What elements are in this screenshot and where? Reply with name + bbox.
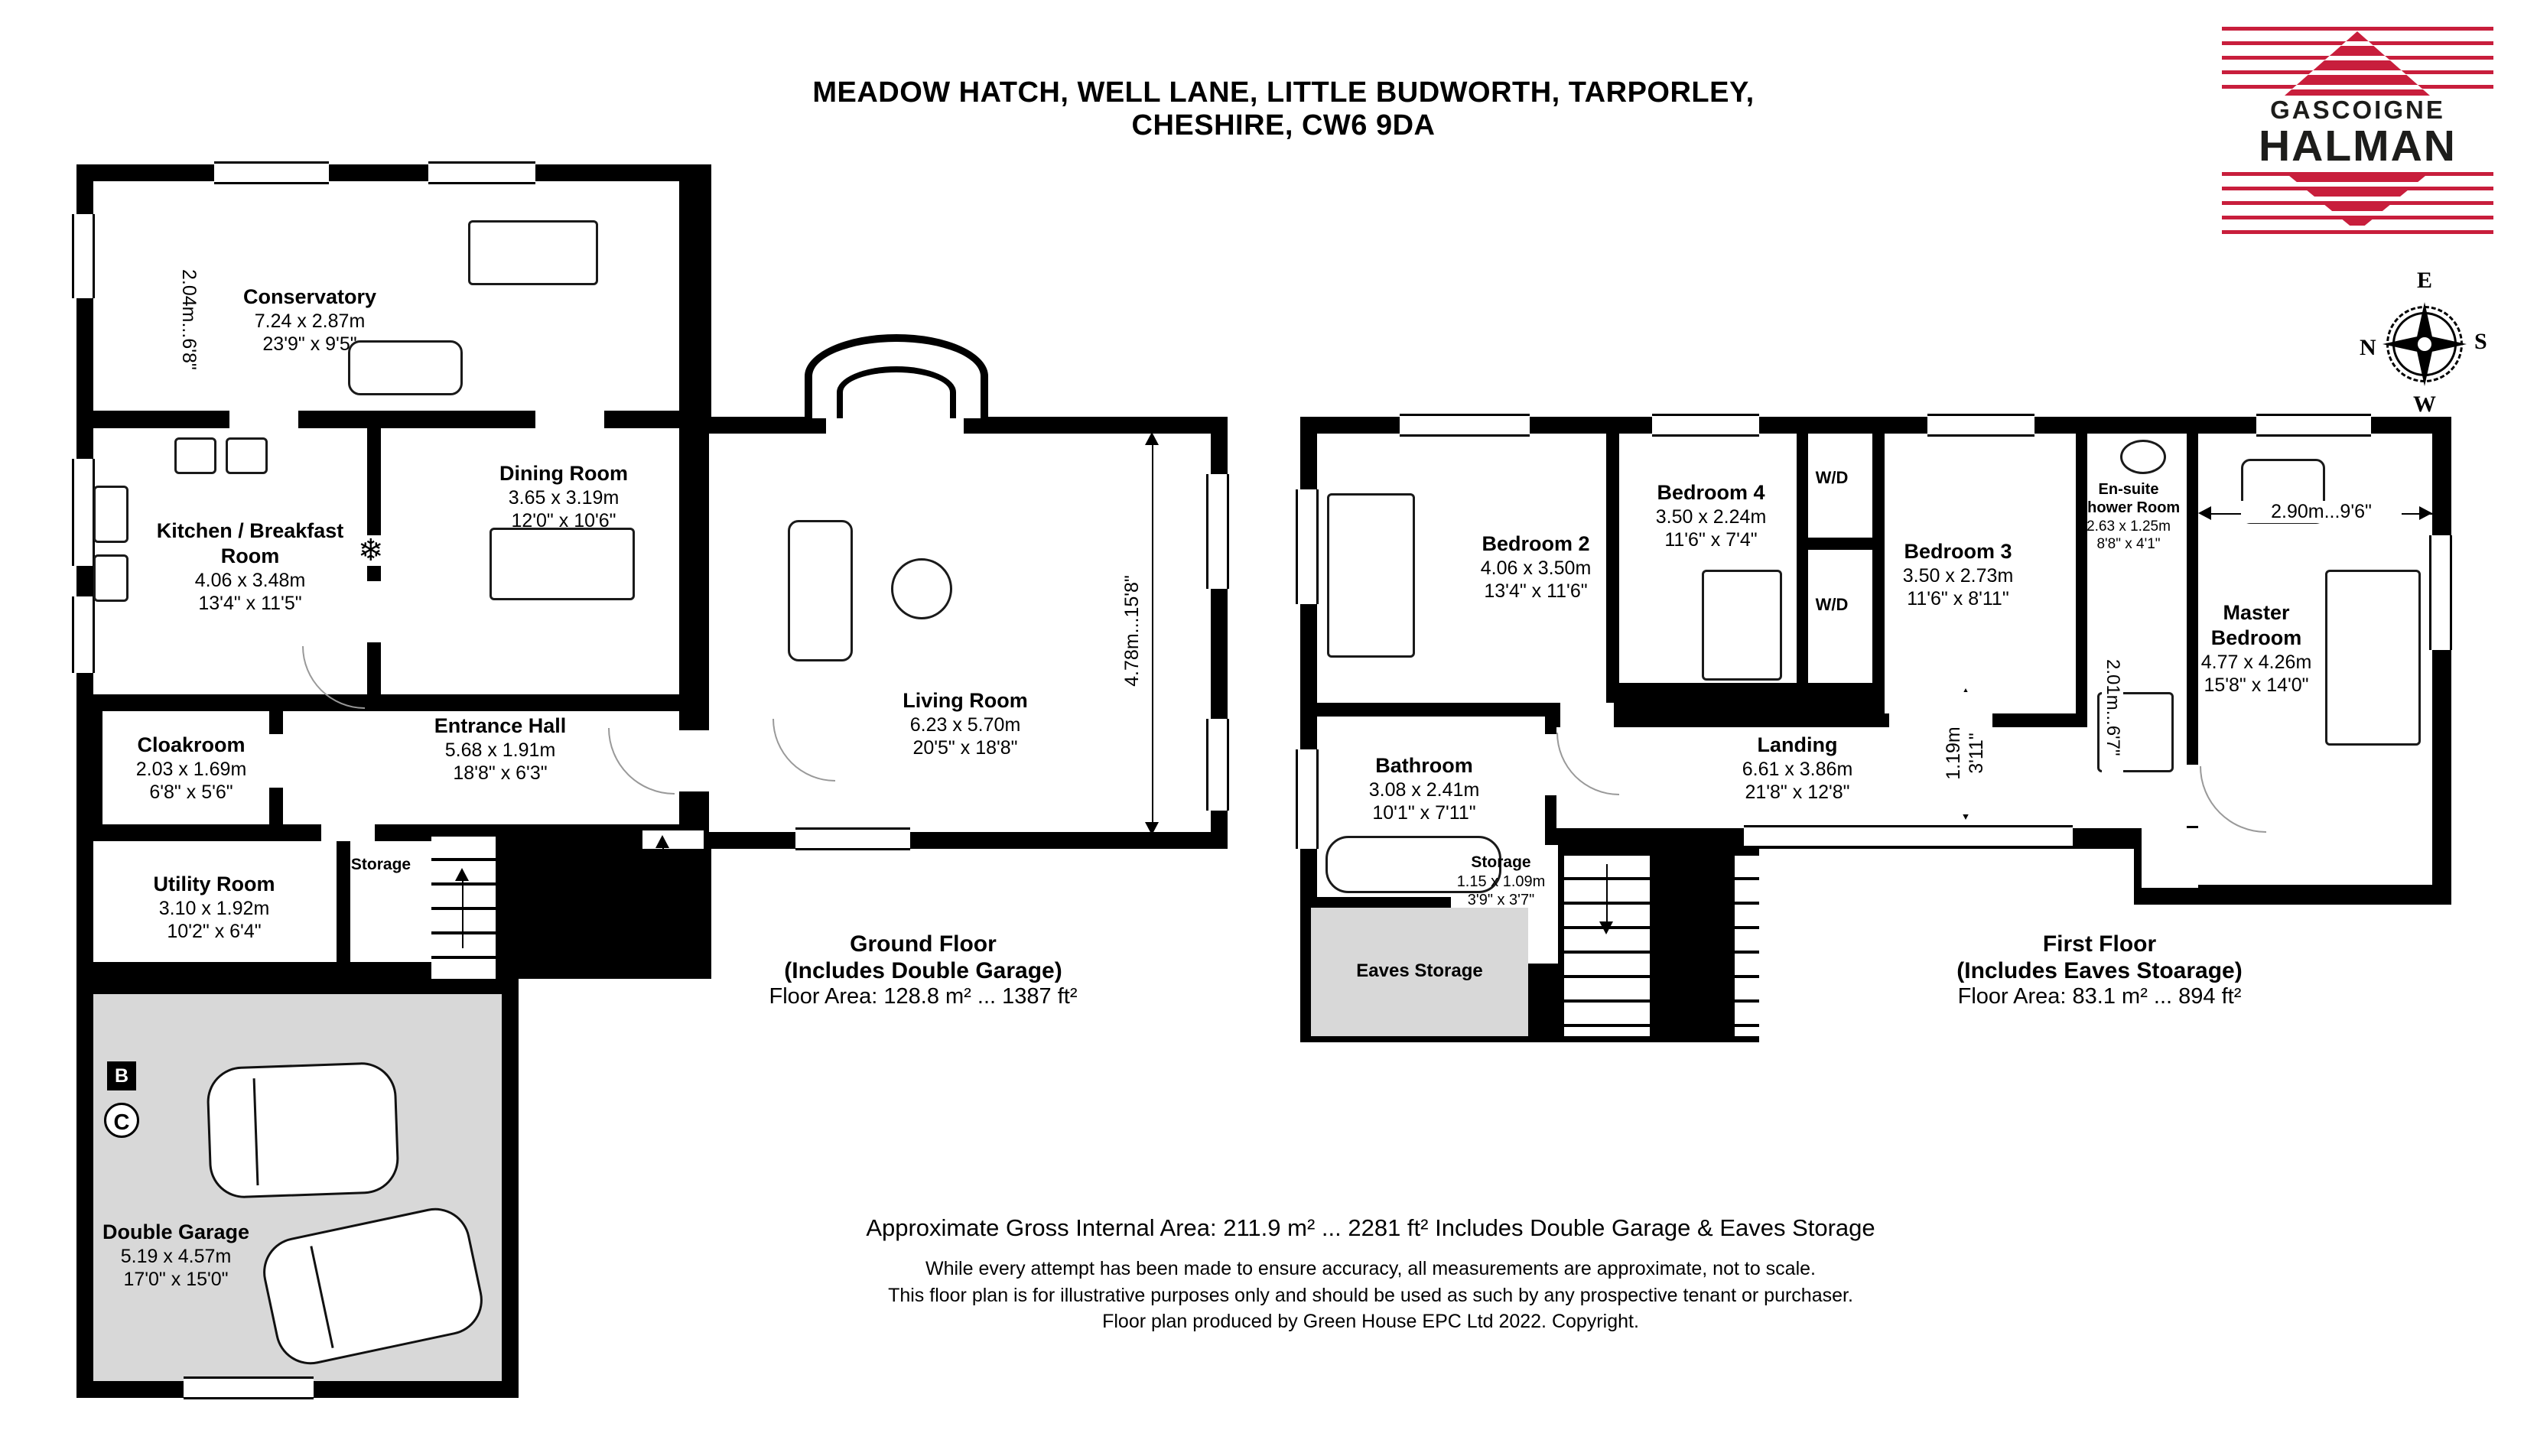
room-size-metric: 4.06 x 3.50m	[1421, 557, 1651, 580]
room-size-metric: 3.50 x 2.24m	[1596, 505, 1826, 529]
window	[1206, 474, 1229, 589]
staircase-ground	[431, 834, 496, 979]
window	[214, 161, 329, 184]
bed-icon	[1702, 570, 1782, 681]
room-size-metric: 3.08 x 2.41m	[1309, 778, 1539, 802]
room-size-metric: 5.19 x 4.57m	[99, 1245, 252, 1269]
window	[428, 161, 535, 184]
room-size-imperial: 11'6" x 7'4"	[1596, 528, 1826, 552]
entrance-arrow-icon	[655, 835, 669, 848]
storage-gf-label: Storage	[324, 855, 438, 875]
room-name: Conservatory	[195, 284, 424, 310]
stair-up-arrow-icon	[455, 868, 469, 881]
room-label-utility: Utility Room 3.10 x 1.92m 10'2" x 6'4"	[99, 872, 329, 944]
dim-arrow-icon	[2198, 506, 2211, 520]
room-size-metric: 2.03 x 1.69m	[88, 758, 294, 782]
window	[1652, 414, 1759, 437]
window	[1400, 414, 1530, 437]
window	[1206, 719, 1229, 811]
living-sofa-icon	[788, 520, 853, 661]
room-size-imperial: 21'8" x 12'8"	[1683, 781, 1912, 804]
room-name: Living Room	[847, 688, 1084, 713]
stair-down-arrow-line	[1606, 864, 1608, 925]
logo-triangle-up-icon	[2285, 31, 2430, 96]
dim-line-living	[1152, 442, 1153, 824]
window	[795, 827, 910, 850]
front-door-opening	[826, 417, 964, 435]
room-size-imperial: 23'9" x 9'5"	[195, 333, 424, 356]
door-opening	[1889, 713, 1943, 727]
basin-icon	[2120, 440, 2166, 474]
door-opening	[321, 824, 375, 841]
room-size-metric: 3.65 x 3.19m	[449, 486, 678, 510]
page-title: MEADOW HATCH, WELL LANE, LITTLE BUDWORTH…	[748, 76, 1819, 142]
door-opening	[1545, 734, 1556, 795]
hob-icon	[93, 486, 128, 543]
room-size-metric: 3.10 x 1.92m	[99, 897, 329, 921]
room-size-imperial: 6'8" x 5'6"	[88, 781, 294, 804]
window	[1744, 825, 2073, 848]
window	[2256, 414, 2371, 437]
room-size-imperial: 17'0" x 15'0"	[99, 1268, 252, 1292]
porch-arch-inner	[837, 366, 956, 418]
floorplan-canvas: MEADOW HATCH, WELL LANE, LITTLE BUDWORTH…	[0, 0, 2524, 1456]
dining-table-icon	[490, 528, 635, 600]
room-size-imperial: 15'8" x 14'0"	[2195, 674, 2317, 697]
room-size-imperial: 18'8" x 6'3"	[385, 762, 615, 785]
room-name: Bedroom 4	[1596, 480, 1826, 505]
room-size-imperial: 10'2" x 6'4"	[99, 920, 329, 944]
room-label-bedroom3: Bedroom 3 3.50 x 2.73m 11'6" x 8'11"	[1843, 539, 2073, 611]
door-opening	[2187, 765, 2198, 826]
compass-north: N	[2360, 335, 2376, 361]
room-name: Storage	[1438, 853, 1564, 873]
compass-rose: E S W N	[2360, 268, 2490, 421]
window	[72, 214, 95, 298]
room-size-metric: 3.50 x 2.73m	[1843, 564, 2073, 588]
footer-disclaimer: Approximate Gross Internal Area: 211.9 m…	[835, 1214, 1906, 1335]
room-size-imperial: 10'1" x 7'11"	[1309, 801, 1539, 825]
room-label-storage-ff: Storage 1.15 x 1.09m 3'9" x 3'7"	[1438, 853, 1564, 909]
room-size-metric: 6.61 x 3.86m	[1683, 758, 1912, 782]
coffee-table-icon	[891, 558, 952, 619]
room-label-living: Living Room 6.23 x 5.70m 20'5" x 18'8"	[847, 688, 1084, 760]
copyright-line: Floor plan produced by Green House EPC L…	[835, 1308, 1906, 1335]
logo-triangle-down-icon	[2285, 172, 2430, 232]
room-size-metric: 4.77 x 4.26m	[2195, 651, 2317, 674]
master-walkway-floor	[2142, 828, 2198, 888]
room-size-imperial: 8'8" x 4'1"	[2071, 535, 2186, 553]
compass-east: E	[2417, 268, 2432, 294]
car-icon	[206, 1061, 400, 1200]
gascoigne-halman-logo: GASCOIGNE HALMAN	[2222, 27, 2493, 235]
room-label-hall: Entrance Hall 5.68 x 1.91m 18'8" x 6'3"	[385, 713, 615, 785]
door-opening	[229, 411, 298, 428]
car-windshield	[310, 1246, 333, 1348]
room-label-garage: Double Garage 5.19 x 4.57m 17'0" x 15'0"	[99, 1220, 252, 1292]
room-label-conservatory: Conservatory 7.24 x 2.87m 23'9" x 9'5"	[195, 284, 424, 356]
dim-arrow-icon	[2419, 506, 2432, 520]
dim-conservatory-depth: 2.04m...6'8"	[177, 269, 200, 514]
room-name: Cloakroom	[88, 733, 294, 758]
entrance-door-opening	[642, 830, 704, 849]
window	[72, 596, 95, 673]
room-size-metric: 4.06 x 3.48m	[151, 569, 350, 593]
room-label-cloakroom: Cloakroom 2.03 x 1.69m 6'8" x 5'6"	[88, 733, 294, 804]
room-size-imperial: 13'4" x 11'5"	[151, 592, 350, 616]
disclaimer-line: While every attempt has been made to ens…	[835, 1256, 1906, 1282]
compass-west: W	[2413, 392, 2436, 418]
compass-south: S	[2474, 329, 2487, 355]
room-name: Master Bedroom	[2195, 600, 2317, 651]
eaves-storage-label: Eaves Storage	[1305, 960, 1534, 982]
dim-arrow-icon	[1145, 432, 1159, 445]
entrance-label: Entrance	[587, 899, 740, 925]
room-size-metric: 5.68 x 1.91m	[385, 739, 615, 762]
room-label-kitchen: Kitchen / Breakfast Room 4.06 x 3.48m 13…	[151, 518, 350, 616]
marker-b: B	[107, 1061, 136, 1090]
door-opening	[1560, 703, 1614, 727]
room-size-imperial: 12'0" x 10'6"	[449, 509, 678, 533]
logo-wordmark: GASCOIGNE HALMAN	[2222, 96, 2493, 172]
logo-line2: HALMAN	[2222, 125, 2493, 168]
room-label-master: Master Bedroom 4.77 x 4.26m 15'8" x 14'0…	[2195, 600, 2317, 697]
door-opening	[679, 730, 709, 791]
window	[2429, 535, 2452, 650]
gross-internal-area: Approximate Gross Internal Area: 211.9 m…	[835, 1214, 1906, 1242]
fridge-freezer-icon: ❄	[358, 535, 384, 566]
room-size-imperial: 13'4" x 11'6"	[1421, 580, 1651, 603]
door-opening	[535, 411, 604, 428]
room-label-bedroom4: Bedroom 4 3.50 x 2.24m 11'6" x 7'4"	[1596, 480, 1826, 552]
room-size-imperial: 20'5" x 18'8"	[847, 736, 1084, 760]
room-size-metric: 6.23 x 5.70m	[847, 713, 1084, 737]
conservatory-table-icon	[468, 220, 598, 285]
room-name: Double Garage	[99, 1220, 252, 1245]
room-size-imperial: 3'9" x 3'7"	[1438, 891, 1564, 909]
marker-c: C	[104, 1103, 139, 1138]
room-size-metric: 1.15 x 1.09m	[1438, 873, 1564, 891]
dim-master-width: 2.90m...9'6"	[2241, 501, 2402, 523]
room-size-metric: 2.63 x 1.25m	[2071, 518, 2186, 535]
logo-line1: GASCOIGNE	[2222, 96, 2493, 125]
room-name: Entrance Hall	[385, 713, 615, 739]
dim-arrow-icon	[1145, 822, 1159, 835]
dim-landing-gap: 1.19m 3'11"	[1942, 692, 1992, 814]
room-name: Utility Room	[99, 872, 329, 897]
window	[1296, 489, 1319, 604]
entrance-arrow-line	[662, 847, 664, 890]
room-label-landing: Landing 6.61 x 3.86m 21'8" x 12'8"	[1683, 733, 1912, 804]
car-windshield	[253, 1078, 259, 1185]
room-size-imperial: 11'6" x 8'11"	[1843, 587, 2073, 611]
room-label-bathroom: Bathroom 3.08 x 2.41m 10'1" x 7'11"	[1309, 753, 1539, 825]
staircase-first-rail	[1735, 853, 1759, 1036]
room-label-dining: Dining Room 3.65 x 3.19m 12'0" x 10'6"	[449, 461, 678, 533]
room-name: Landing	[1683, 733, 1912, 758]
door-opening	[367, 581, 381, 642]
stair-up-arrow-line	[462, 879, 463, 948]
room-name: Dining Room	[449, 461, 678, 486]
room-name: Bedroom 3	[1843, 539, 2073, 564]
bed-icon	[1327, 493, 1415, 658]
wd-label-bottom: W/D	[1797, 595, 1866, 616]
bed-icon	[2325, 570, 2421, 746]
kitchen-unit-icon	[226, 437, 268, 474]
room-name: En-suite Shower Room	[2071, 480, 2186, 518]
dim-ensuite-depth: 2.01m...6'7"	[2102, 659, 2123, 827]
window	[1927, 414, 2034, 437]
room-label-ensuite: En-suite Shower Room 2.63 x 1.25m 8'8" x…	[2071, 480, 2186, 553]
room-name: Kitchen / Breakfast Room	[151, 518, 350, 569]
disclaimer-line: This floor plan is for illustrative purp…	[835, 1282, 1906, 1309]
dim-living-height: 4.78m...15'8"	[1117, 501, 1147, 761]
wd-label-top: W/D	[1797, 468, 1866, 489]
ground-floor-summary: Ground Floor (Includes Double Garage) Fl…	[732, 931, 1114, 1009]
room-name: Bathroom	[1309, 753, 1539, 778]
first-floor-summary: First Floor (Includes Eaves Stoarage) Fl…	[1908, 931, 2291, 1009]
compass-center-dot	[2418, 337, 2431, 351]
stair-down-arrow-icon	[1599, 921, 1613, 934]
window	[184, 1376, 314, 1399]
oven-icon	[93, 554, 128, 602]
room-size-metric: 7.24 x 2.87m	[195, 310, 424, 333]
window	[72, 459, 95, 566]
